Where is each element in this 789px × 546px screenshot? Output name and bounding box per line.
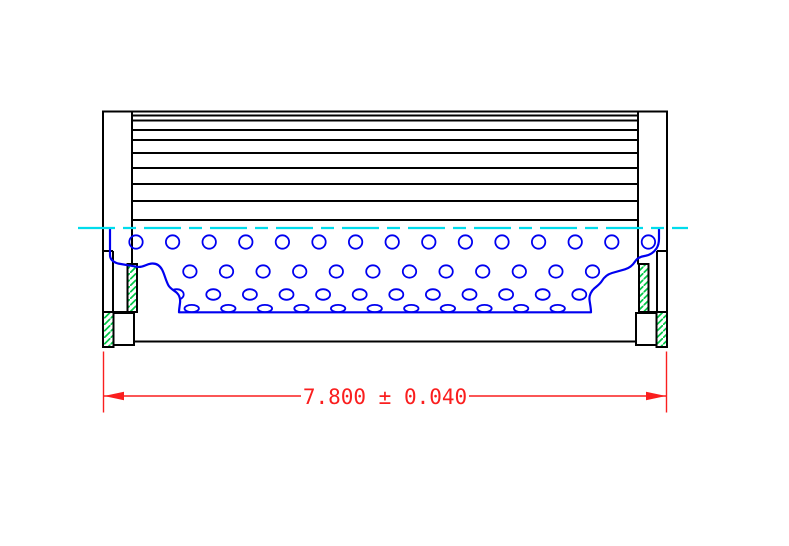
perforation-hole bbox=[258, 305, 272, 312]
perforation-hole bbox=[366, 265, 379, 277]
perforation-hole bbox=[549, 265, 562, 277]
perforation-hole bbox=[532, 235, 545, 248]
perforation-hole bbox=[495, 235, 508, 248]
perforation-hole bbox=[221, 305, 235, 312]
perforation-hole bbox=[330, 265, 343, 277]
perforation-hole bbox=[170, 289, 184, 300]
perforation-hole bbox=[316, 289, 330, 300]
perforation-hole bbox=[439, 265, 452, 277]
perforation-hole bbox=[422, 235, 435, 248]
end-cap-right bbox=[636, 112, 667, 348]
perforation-hole bbox=[220, 265, 233, 277]
perforation-hole bbox=[349, 235, 362, 248]
perforation-hole bbox=[312, 235, 325, 248]
perforation-holes bbox=[129, 235, 655, 312]
perforation-hole bbox=[403, 265, 416, 277]
core-cutaway bbox=[110, 229, 659, 313]
perforation-hole bbox=[536, 289, 550, 300]
drawing-canvas: 7.800 ± 0.040 bbox=[0, 0, 789, 546]
perforation-hole bbox=[294, 305, 308, 312]
perforation-hole bbox=[386, 235, 399, 248]
perforation-hole bbox=[280, 289, 294, 300]
end-cap-left-foot bbox=[114, 313, 135, 345]
end-cap-left-section-hatch bbox=[128, 264, 138, 312]
perforation-hole bbox=[404, 305, 418, 312]
perforation-hole bbox=[276, 235, 289, 248]
arrowhead-left-icon bbox=[104, 392, 124, 400]
perforation-hole bbox=[569, 235, 582, 248]
arrowhead-right-icon bbox=[646, 392, 666, 400]
media-outline bbox=[132, 112, 638, 221]
end-cap-right-foot-hatch bbox=[657, 312, 668, 347]
filter-media bbox=[132, 112, 638, 342]
perforation-hole bbox=[476, 265, 489, 277]
perforation-hole bbox=[499, 289, 513, 300]
perforation-hole bbox=[331, 305, 345, 312]
perforation-hole bbox=[203, 235, 216, 248]
perforation-hole bbox=[256, 265, 269, 277]
perforation-hole bbox=[147, 265, 160, 277]
perforation-hole bbox=[206, 289, 220, 300]
perforation-hole bbox=[239, 235, 252, 248]
perforation-hole bbox=[514, 305, 528, 312]
dimension: 7.800 ± 0.040 bbox=[104, 352, 667, 413]
perforation-hole bbox=[513, 265, 526, 277]
perforation-hole bbox=[166, 235, 179, 248]
perforation-hole bbox=[183, 265, 196, 277]
perforation-hole bbox=[293, 265, 306, 277]
perforation-hole bbox=[389, 289, 403, 300]
dimension-text: 7.800 ± 0.040 bbox=[303, 385, 467, 409]
end-cap-right-foot bbox=[636, 313, 657, 345]
pleat-lines bbox=[132, 116, 638, 202]
perforation-hole bbox=[353, 289, 367, 300]
perforation-hole bbox=[477, 305, 491, 312]
perforation-hole bbox=[441, 305, 455, 312]
end-cap-left-foot-hatch bbox=[103, 312, 114, 347]
filter-element-drawing: 7.800 ± 0.040 bbox=[0, 0, 789, 546]
perforation-hole bbox=[605, 235, 618, 248]
perforation-hole bbox=[243, 289, 257, 300]
perforation-hole bbox=[551, 305, 565, 312]
perforation-hole bbox=[642, 235, 655, 248]
perforation-hole bbox=[572, 289, 586, 300]
perforation-hole bbox=[459, 235, 472, 248]
perforation-hole bbox=[426, 289, 440, 300]
perforation-hole bbox=[463, 289, 477, 300]
end-cap-right-section-hatch bbox=[639, 264, 649, 312]
perforation-hole bbox=[586, 265, 599, 277]
perforation-hole bbox=[185, 305, 199, 312]
perforation-hole bbox=[368, 305, 382, 312]
